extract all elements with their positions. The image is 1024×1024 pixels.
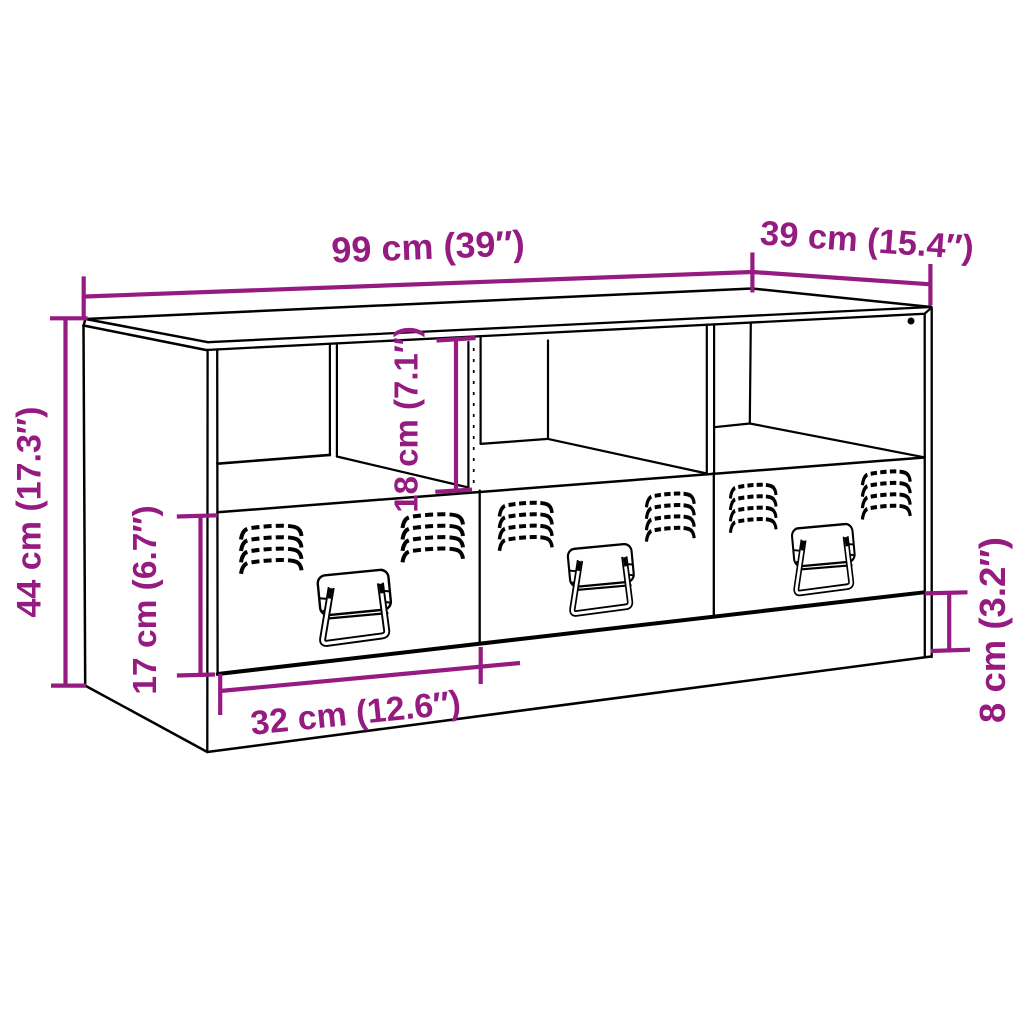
svg-text:99 cm (39″): 99 cm (39″) (331, 222, 526, 270)
svg-text:18 cm (7.1″): 18 cm (7.1″) (387, 326, 424, 512)
svg-text:44 cm (17.3″): 44 cm (17.3″) (11, 407, 49, 618)
svg-text:17 cm (6.7″): 17 cm (6.7″) (127, 505, 164, 694)
svg-text:8 cm (3.2″): 8 cm (3.2″) (972, 537, 1013, 723)
